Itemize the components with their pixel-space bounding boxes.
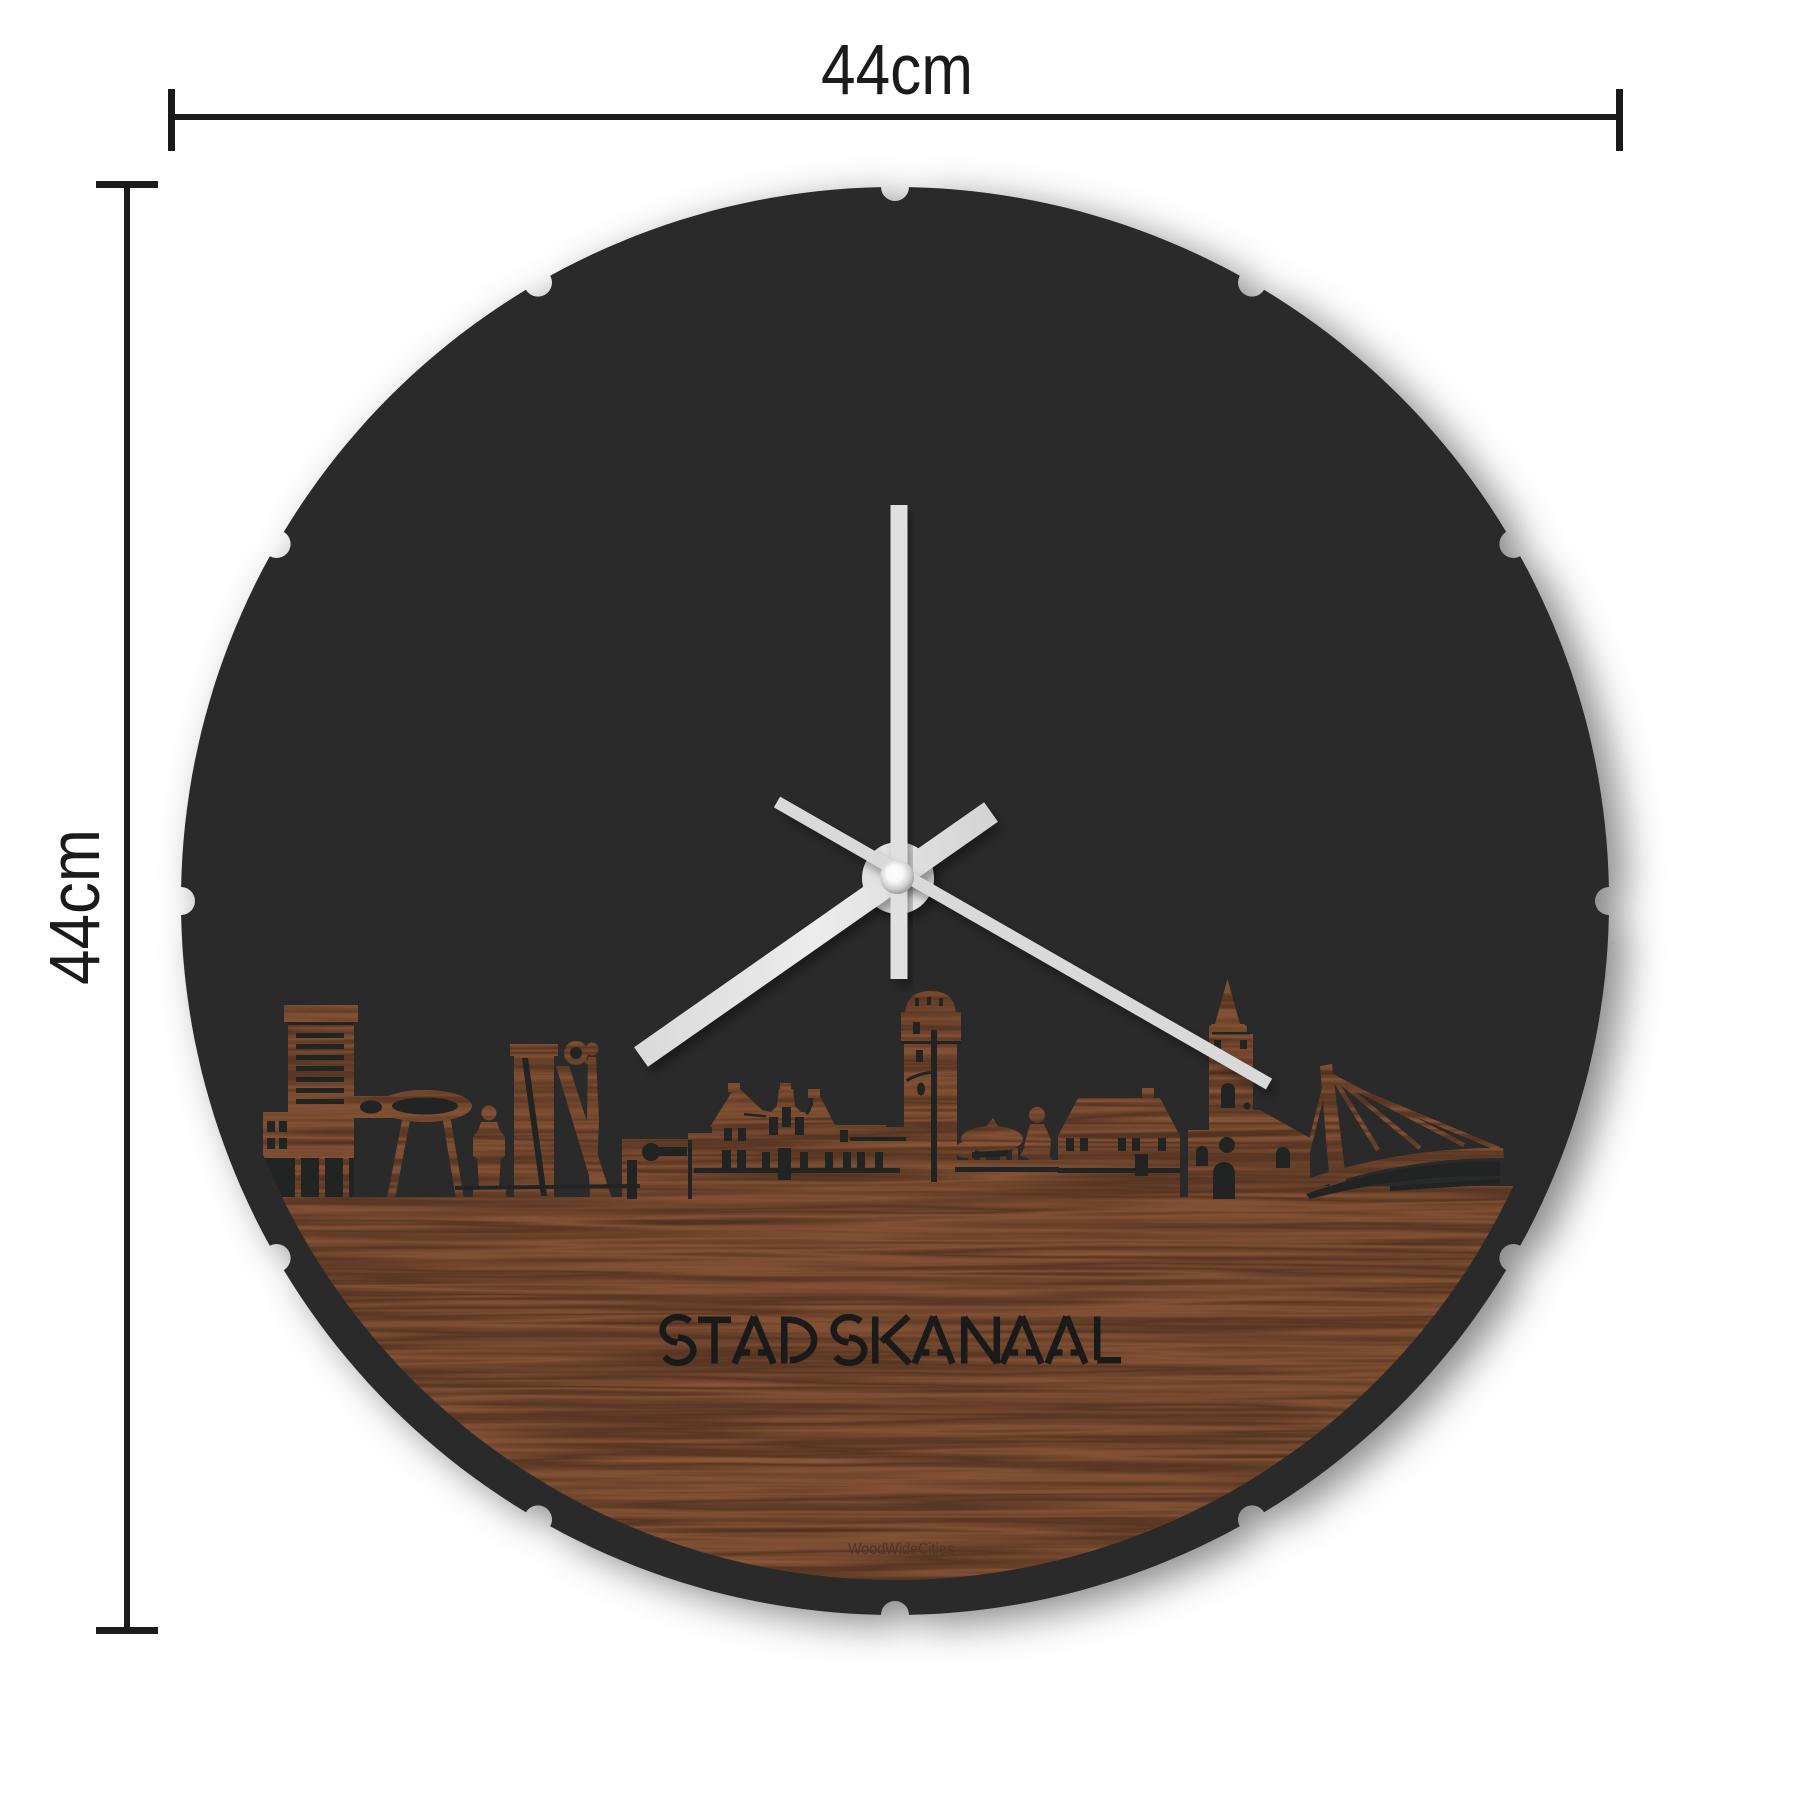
svg-text:44cm: 44cm [36, 829, 115, 985]
svg-text:WoodWideCities: WoodWideCities [848, 1541, 954, 1558]
svg-text:44cm: 44cm [821, 31, 973, 110]
